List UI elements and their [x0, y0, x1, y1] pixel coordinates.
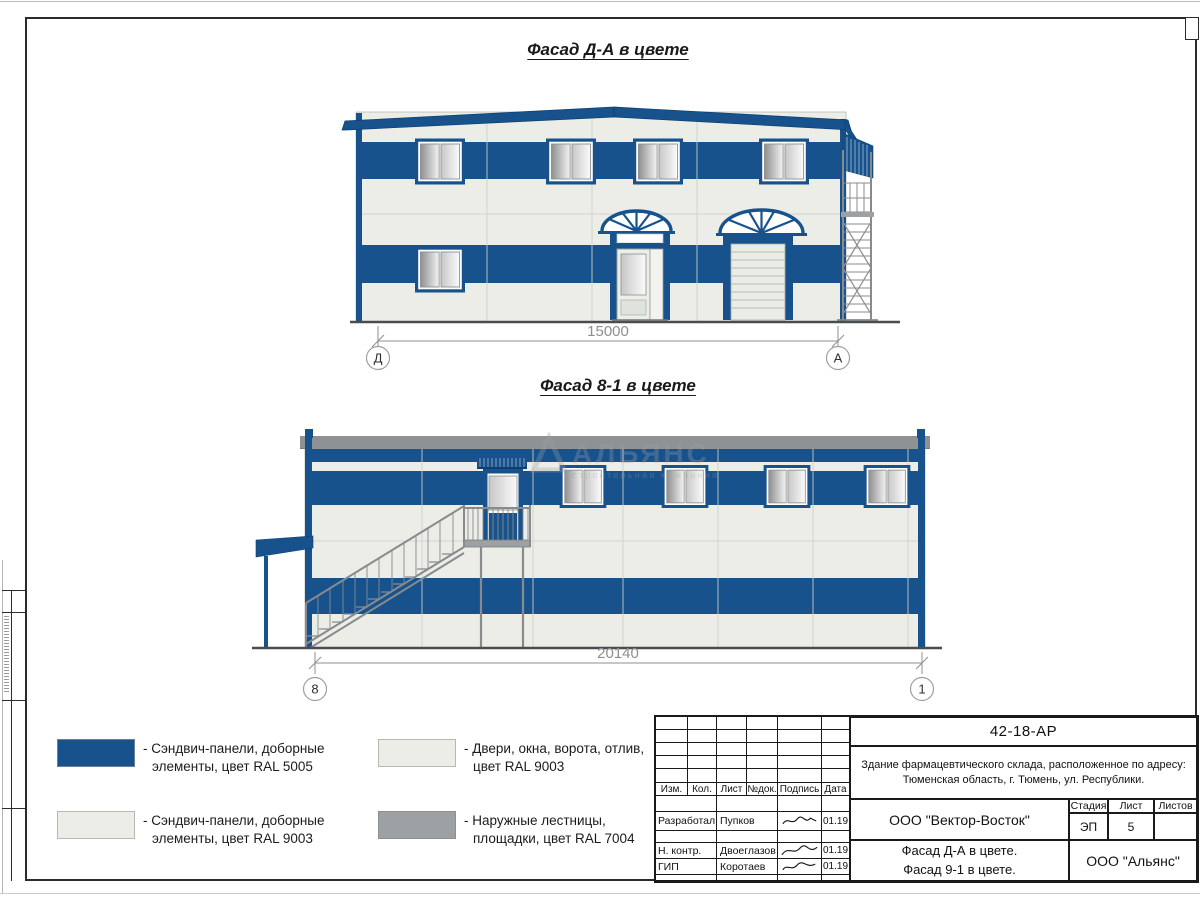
tb-role-developer: Разработал	[656, 812, 717, 831]
tb-col-list: Лист	[717, 783, 747, 796]
drawing-sheet: Фасад Д-А в цвете Фасад 8-1 в цвете	[0, 0, 1200, 900]
tb-empty-cell	[778, 769, 822, 783]
watermark-tagline: строительная компания	[572, 470, 719, 481]
window	[546, 139, 596, 185]
tb-sheet-subject: Фасад Д-А в цвете. Фасад 9-1 в цвете.	[850, 840, 1069, 881]
tb-empty-cell	[656, 769, 688, 783]
margin-divider	[2, 612, 25, 613]
tb-empty-cell	[717, 756, 747, 769]
tb-project-line2: Тюменская область, г. Тюмень, ул. Респуб…	[903, 773, 1145, 788]
window	[415, 247, 465, 293]
window	[633, 139, 683, 185]
tb-empty-cell	[778, 717, 822, 730]
tb-empty-cell	[822, 743, 850, 756]
tb-role-ncontrol: Н. контр.	[656, 843, 717, 859]
window	[415, 139, 465, 185]
legend-item-doors-windows: - Двери, окна, ворота, отлив, цвет RAL 9…	[378, 739, 644, 776]
tb-empty-cell	[717, 743, 747, 756]
tb-subject-line2: Фасад 9-1 в цвете.	[903, 861, 1016, 880]
tb-empty-cell	[822, 756, 850, 769]
signature-gip	[778, 859, 822, 875]
tb-col-kol: Кол.	[688, 783, 717, 796]
upper-door	[477, 456, 527, 547]
facade-81-drawing: АЛЬЯНС строительная компания 20140 8 1	[245, 425, 945, 705]
tb-sheet-value: 5	[1108, 813, 1154, 840]
tb-empty-cell	[747, 730, 778, 743]
legend-item-ral9003-panels: - Сэндвич-панели, доборные элементы, цве…	[57, 811, 325, 848]
signature-developer	[778, 812, 822, 831]
left-margin-stamp-text	[4, 616, 9, 692]
margin-divider	[2, 590, 25, 591]
tb-project-description: Здание фармацевтического склада, располо…	[850, 746, 1197, 799]
tb-name-ncontrol: Двоеглазов	[717, 843, 778, 859]
tb-col-ndok: №док.	[747, 783, 778, 796]
tb-sheets-label: Листов	[1154, 799, 1197, 813]
watermark-name: АЛЬЯНС	[572, 438, 710, 469]
legend-label: - Двери, окна, ворота, отлив, цвет RAL 9…	[464, 739, 644, 776]
corner-trim-right	[918, 437, 925, 648]
sheet-edge-left	[2, 560, 3, 893]
legend-label-line1: - Наружные лестницы,	[464, 812, 635, 830]
legend-label-line1: - Сэндвич-панели, доборные	[143, 812, 325, 830]
tb-stage-value: ЭП	[1069, 813, 1108, 840]
tb-empty-cell	[688, 730, 717, 743]
legend-swatch-ral7004	[378, 811, 456, 839]
title-block: Изм. Кол. Лист №док. Подпись Дата Разраб…	[654, 715, 1199, 883]
legend-item-ral5005: - Сэндвич-панели, доборные элементы, цве…	[57, 739, 325, 776]
entrance-canopy	[256, 536, 313, 648]
corner-trim-left	[356, 113, 362, 322]
tb-empty-cell	[717, 717, 747, 730]
tb-empty-cell	[778, 796, 822, 812]
window	[764, 465, 811, 508]
margin-divider	[2, 808, 25, 809]
tb-empty-cell	[747, 756, 778, 769]
tb-empty-cell	[778, 730, 822, 743]
tb-empty-cell	[656, 717, 688, 730]
title-block-signature-grid: Изм. Кол. Лист №док. Подпись Дата Разраб…	[656, 717, 850, 881]
tb-empty-cell	[778, 743, 822, 756]
building-da	[342, 107, 900, 322]
tb-name-gip: Коротаев	[717, 859, 778, 875]
legend-label: - Наружные лестницы, площадки, цвет RAL …	[464, 811, 635, 848]
tb-empty-cell	[656, 796, 717, 812]
tb-empty-cell	[747, 717, 778, 730]
axis-label-d: Д	[374, 351, 383, 366]
legend-label-line2: площадки, цвет RAL 7004	[464, 830, 635, 848]
tb-col-data: Дата	[822, 783, 850, 796]
tb-empty-cell	[822, 831, 850, 843]
tb-stage-label: Стадия	[1069, 799, 1108, 813]
tb-empty-cell	[778, 756, 822, 769]
legend-swatch-ral9003	[57, 811, 135, 839]
legend-swatch-doors	[378, 739, 456, 767]
tb-client-org: ООО "Альянс"	[1069, 840, 1197, 881]
legend-label-line2: цвет RAL 9003	[464, 758, 644, 776]
axis-label-8: 8	[311, 682, 318, 697]
facade-da-drawing: 15000 Д А	[330, 95, 910, 375]
tb-designer-org: ООО "Вектор-Восток"	[850, 799, 1069, 840]
tb-empty-cell	[747, 769, 778, 783]
tb-empty-cell	[747, 743, 778, 756]
tb-empty-cell	[717, 730, 747, 743]
tb-sheet-label: Лист	[1108, 799, 1154, 813]
tb-subject-line1: Фасад Д-А в цвете.	[902, 842, 1018, 861]
tb-empty-cell	[717, 875, 778, 881]
axis-label-a: А	[834, 351, 843, 366]
tb-project-line1: Здание фармацевтического склада, располо…	[861, 758, 1186, 773]
facade-da-title: Фасад Д-А в цвете	[458, 40, 758, 60]
tb-empty-cell	[822, 875, 850, 881]
legend-label: - Сэндвич-панели, доборные элементы, цве…	[143, 739, 325, 776]
tb-date-gip: 01.19	[822, 859, 850, 875]
tb-role-gip: ГИП	[656, 859, 717, 875]
tb-col-podpis: Подпись	[778, 783, 822, 796]
tb-empty-cell	[778, 875, 822, 881]
dimension-da: 15000 Д А	[367, 323, 850, 370]
tb-empty-cell	[688, 717, 717, 730]
legend-item-stairs: - Наружные лестницы, площадки, цвет RAL …	[378, 811, 635, 848]
sheet-edge-top	[0, 1, 1200, 2]
tb-empty-cell	[717, 796, 778, 812]
tb-empty-cell	[822, 769, 850, 783]
tb-empty-cell	[656, 756, 688, 769]
legend-swatch-ral5005	[57, 739, 135, 767]
dimension-value-81: 20140	[597, 645, 639, 662]
tb-empty-cell	[717, 769, 747, 783]
frame-corner-box	[1185, 17, 1199, 40]
tb-empty-cell	[778, 831, 822, 843]
signature-ncontrol	[778, 843, 822, 859]
fire-escape	[837, 133, 878, 320]
tb-empty-cell	[656, 875, 717, 881]
tb-col-izm: Изм.	[656, 783, 688, 796]
tb-empty-cell	[688, 743, 717, 756]
tb-empty-cell	[656, 730, 688, 743]
tb-empty-cell	[822, 796, 850, 812]
tb-empty-cell	[822, 717, 850, 730]
tb-sheets-value	[1154, 813, 1197, 840]
margin-divider	[2, 700, 25, 701]
tb-date-developer: 01.19	[822, 812, 850, 831]
building-81: АЛЬЯНС строительная компания	[252, 429, 942, 648]
tb-empty-cell	[717, 831, 778, 843]
facade-81-title: Фасад 8-1 в цвете	[468, 376, 768, 396]
tb-empty-cell	[656, 743, 688, 756]
tb-doc-number: 42-18-АР	[850, 717, 1197, 746]
dimension-81: 20140 8 1	[304, 645, 934, 701]
tb-empty-cell	[688, 769, 717, 783]
tb-empty-cell	[822, 730, 850, 743]
legend-label-line1: - Сэндвич-панели, доборные	[143, 740, 325, 758]
tb-date-ncontrol: 01.19	[822, 843, 850, 859]
legend-label-line2: элементы, цвет RAL 5005	[143, 758, 325, 776]
tb-name-developer: Пупков	[717, 812, 778, 831]
margin-column-line	[11, 590, 12, 881]
axis-label-1: 1	[918, 682, 925, 697]
window	[759, 139, 809, 185]
window	[864, 465, 911, 508]
legend-label: - Сэндвич-панели, доборные элементы, цве…	[143, 811, 325, 848]
legend-label-line1: - Двери, окна, ворота, отлив,	[464, 740, 644, 758]
legend-label-line2: элементы, цвет RAL 9003	[143, 830, 325, 848]
tb-empty-cell	[688, 756, 717, 769]
tb-empty-cell	[656, 831, 717, 843]
canopy-post	[264, 556, 268, 648]
dimension-value-da: 15000	[587, 323, 629, 340]
sheet-edge-bottom	[0, 893, 1200, 894]
